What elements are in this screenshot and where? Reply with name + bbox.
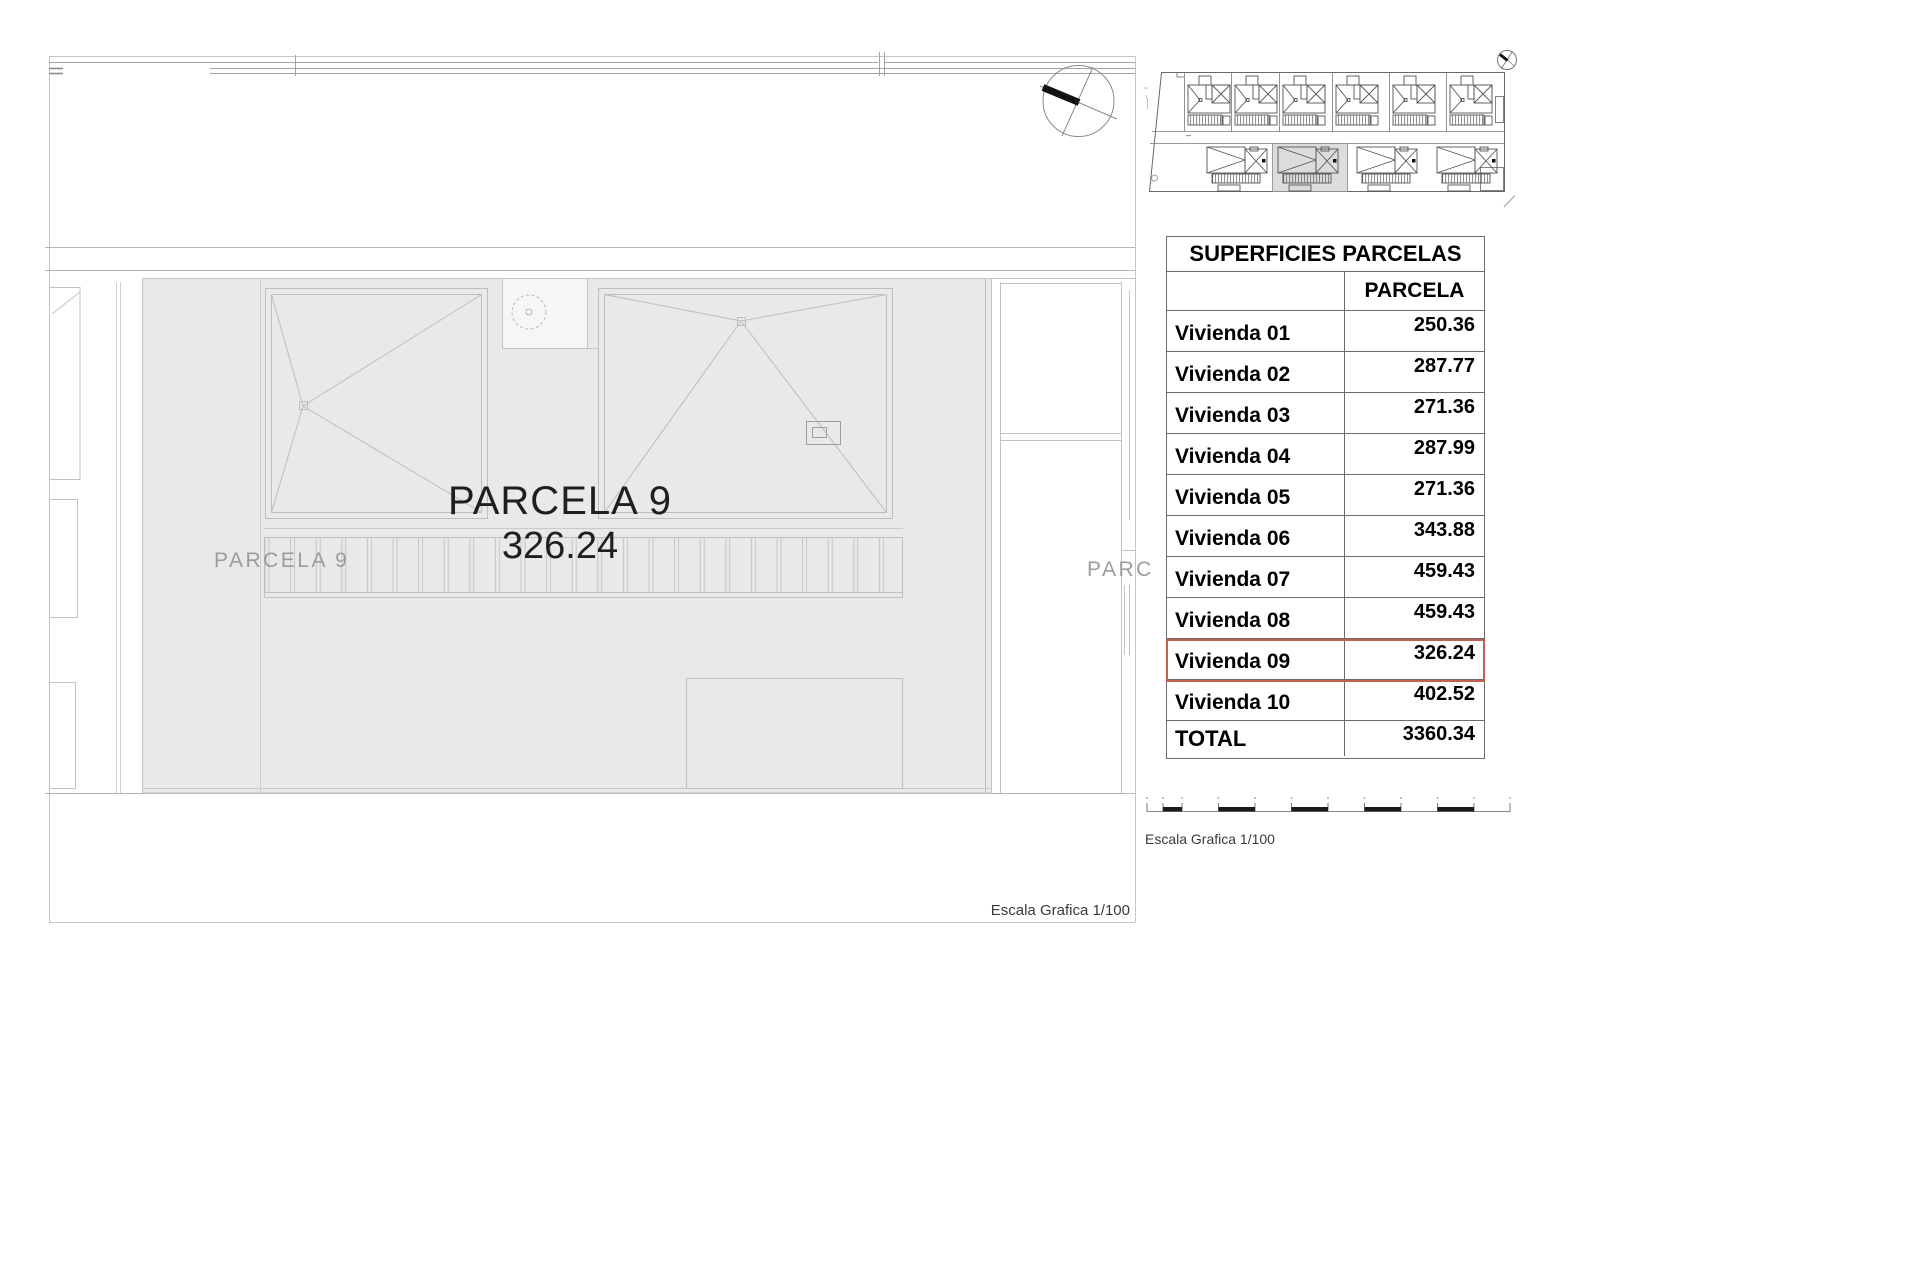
table-header-parcela: PARCELA [1345, 272, 1484, 310]
row-value: 287.99 [1345, 434, 1484, 474]
thumbnail-manhole [1152, 175, 1158, 181]
table-row-vivienda-09: Vivienda 09 326.24 [1167, 639, 1484, 680]
row-label: Vivienda 05 [1167, 475, 1345, 515]
row-value: 271.36 [1345, 393, 1484, 433]
table-row-vivienda-08: Vivienda 08 459.43 [1167, 598, 1484, 639]
table-row-vivienda-02: Vivienda 02 287.77 [1167, 352, 1484, 393]
panel-scale-caption: Escala Grafica 1/100 [1145, 831, 1275, 847]
right-neighbor-parcel [992, 279, 1136, 794]
parcel-area-large: 326.24 [400, 527, 720, 565]
row-value: 402.52 [1345, 680, 1484, 720]
row-value: 326.24 [1345, 639, 1484, 679]
table-title: SUPERFICIES PARCELAS [1167, 237, 1484, 272]
table-row-vivienda-07: Vivienda 07 459.43 [1167, 557, 1484, 598]
row-label: Vivienda 08 [1167, 598, 1345, 638]
row-label: Vivienda 06 [1167, 516, 1345, 556]
row-label: Vivienda 07 [1167, 557, 1345, 597]
left-neighbor-parcels [50, 282, 121, 793]
thumbnail-mark [1504, 196, 1515, 208]
total-value: 3360.34 [1345, 721, 1484, 756]
parcel-areas-table: SUPERFICIES PARCELAS PARCELA Vivienda 01… [1166, 236, 1485, 759]
tree-plot [503, 279, 599, 349]
parcel-name-small: PARCELA 9 [214, 549, 349, 573]
row-label: Vivienda 09 [1167, 639, 1345, 679]
row-value: 459.43 [1345, 598, 1484, 638]
table-row-vivienda-04: Vivienda 04 287.99 [1167, 434, 1484, 475]
thumbnail-road [1150, 132, 1504, 144]
row-label: Vivienda 04 [1167, 434, 1345, 474]
table-row-total: TOTAL 3360.34 [1167, 721, 1484, 756]
row-value: 271.36 [1345, 475, 1484, 515]
street-top-lines [49, 52, 1135, 76]
table-header-row: PARCELA [1167, 272, 1484, 311]
thumbnail-compass-icon [1498, 51, 1517, 70]
plan-sheet: PARCELA 9 326.24 PARCELA 9 PARC Escala G… [0, 0, 1920, 1280]
site-overview-thumbnail [1143, 51, 1517, 208]
row-value: 459.43 [1345, 557, 1484, 597]
parcel-name-large: PARCELA 9 [400, 481, 720, 521]
panel-scale-bar [1146, 797, 1511, 812]
table-row-vivienda-03: Vivienda 03 271.36 [1167, 393, 1484, 434]
parcel-main-label: PARCELA 9 326.24 [400, 481, 720, 565]
neighbor-parcel-label: PARC [1087, 558, 1154, 582]
site-plan-drawing [0, 0, 1920, 1280]
drawing-scale-caption: Escala Grafica 1/100 [830, 902, 1130, 919]
table-row-vivienda-01: Vivienda 01 250.36 [1167, 311, 1484, 352]
pool-outline [687, 679, 903, 789]
table-row-vivienda-05: Vivienda 05 271.36 [1167, 475, 1484, 516]
north-compass-icon [1040, 66, 1117, 137]
row-label: Vivienda 03 [1167, 393, 1345, 433]
row-value: 250.36 [1345, 311, 1484, 351]
row-label: Vivienda 02 [1167, 352, 1345, 392]
table-row-vivienda-10: Vivienda 10 402.52 [1167, 680, 1484, 721]
row-value: 343.88 [1345, 516, 1484, 556]
table-header-empty-cell [1167, 272, 1345, 310]
row-value: 287.77 [1345, 352, 1484, 392]
table-row-vivienda-06: Vivienda 06 343.88 [1167, 516, 1484, 557]
row-label: Vivienda 01 [1167, 311, 1345, 351]
total-label: TOTAL [1167, 721, 1345, 756]
row-label: Vivienda 10 [1167, 680, 1345, 720]
